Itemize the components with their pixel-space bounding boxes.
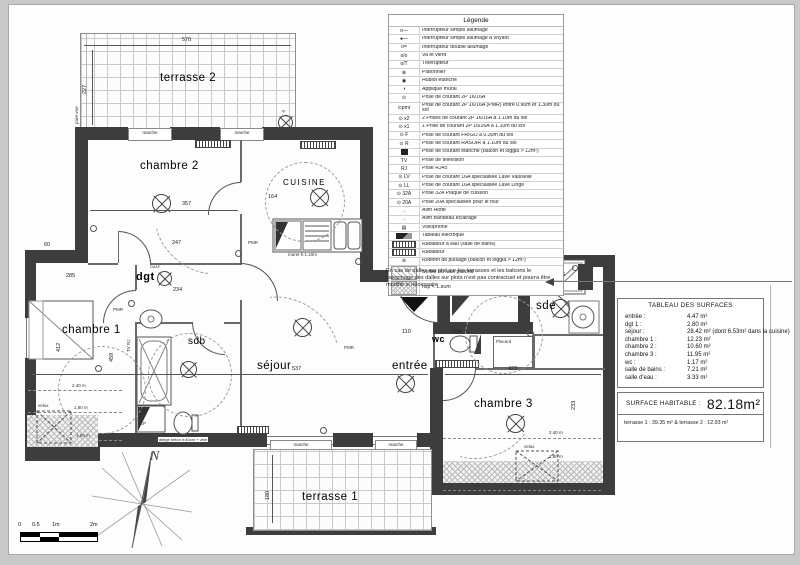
dim-108: 108: [452, 329, 461, 335]
dim-line: [445, 374, 601, 375]
legend-row: ⊙pmr Prise de courant 2P 16/16A (PMR) en…: [389, 102, 563, 114]
room-label-sde: sde: [536, 300, 556, 312]
h100-2: 1.00 m: [547, 483, 561, 488]
legend-row: ⊙ x1 1 Prise de courant 2P 16/16A à 1.10…: [389, 122, 563, 130]
pare-vue-line: [86, 34, 87, 128]
room-label-sejour: séjour: [257, 360, 291, 372]
habitable-box: SURFACE HABITABLE : 82.18m² terrasse 1 :…: [617, 392, 764, 442]
surface-row: salle d'eau : 3.33 m²: [625, 375, 763, 383]
wall: [262, 127, 373, 140]
ep-label: EP: [140, 421, 146, 426]
dim-285: 285: [66, 273, 75, 279]
room-label-cuisine: CUISINE: [283, 178, 326, 187]
surface-value: 4.47 m²: [687, 314, 763, 322]
socket-icon: [90, 225, 97, 232]
legend-row: ⊚ Robinet de puisage (balcon et loggia >…: [389, 257, 563, 265]
dim-412: 412: [56, 343, 62, 352]
legend-label: Prise RJ45: [420, 166, 563, 172]
habitable-value: 82.18m²: [707, 396, 760, 412]
legend-symbol: o/T: [389, 61, 420, 68]
dim-60: 60: [44, 242, 50, 248]
legend-symbol: ⊙: [389, 94, 420, 101]
socket-icon: [95, 365, 102, 372]
surface-row: entrée : 4.47 m²: [625, 314, 763, 322]
room-label-chambre3: chambre 3: [474, 398, 533, 410]
legend-row: ◉ Hublot étanche: [389, 76, 563, 84]
velux-label-2: velux: [524, 444, 535, 449]
surface-name: salle de bains :: [625, 367, 687, 375]
legend-label: Prise de courant FRIGO à 0.30m du sol: [420, 133, 563, 139]
legend-row: RJ Prise RJ45: [389, 164, 563, 172]
dim-line-227: [92, 50, 93, 125]
scale-05: 0.5: [32, 522, 40, 528]
dim-164: 164: [268, 194, 277, 200]
wall: [333, 433, 373, 447]
radiator: [195, 140, 231, 148]
north-label: N: [150, 449, 159, 465]
legend-row: ⊙ R Prise de courant RASOIR à 1.10m du s…: [389, 139, 563, 147]
legend-label: Interrupteur simple allumage à voyant: [420, 36, 563, 42]
room-label-placard: Placard: [496, 339, 511, 344]
legend-symbol: ⊗: [389, 69, 420, 76]
radiator: [435, 360, 479, 368]
basin-sde: [568, 300, 600, 334]
surface-value: 28.42 m² (dont 6.53m² dans la cuisine): [687, 329, 790, 337]
legend-row: Radiateur: [389, 248, 563, 256]
frame-line: [770, 285, 771, 448]
legend-label: Alim Hotte: [420, 208, 563, 214]
wall: [443, 483, 615, 495]
height-line: [28, 390, 122, 391]
duct: [578, 264, 593, 290]
daaf-detector-icon: [157, 271, 172, 286]
legend-label: Prise de courant étanche (balcon et logg…: [420, 149, 563, 155]
pmr-label-sejour: PMR: [344, 345, 354, 350]
rp-label: rp: [282, 109, 285, 113]
legend-symbol: ●—: [389, 35, 420, 42]
wall: [603, 255, 615, 495]
dim-110: 110: [402, 329, 411, 335]
legend-label: Prise 20A spécialisée pour le four: [420, 200, 563, 206]
dim-570: 570: [182, 37, 191, 43]
legend-row: Tableau électrique: [389, 231, 563, 239]
surface-value: 1.17 m²: [687, 360, 763, 368]
section-line: [554, 281, 792, 282]
legend-label: Hublot étanche: [420, 78, 563, 84]
partition: [535, 334, 603, 336]
legend-symbol: o—: [389, 27, 420, 34]
legend-label: Prise de courant 2P 16/16A: [420, 95, 563, 101]
legend-symbol: ⊙ x2: [389, 115, 420, 122]
legend-symbol: ⊙pmr: [389, 103, 420, 114]
wall: [25, 250, 88, 263]
legend-row: → Alim Hotte: [389, 206, 563, 214]
scale-bar: [20, 532, 98, 542]
plot-tiles-note: En cas de dalles sur plot sur les terras…: [386, 268, 554, 289]
partition: [240, 140, 242, 182]
surface-value: 11.95 m²: [687, 352, 763, 360]
legend-row: o/T Télérupteur: [389, 60, 563, 68]
daaf-label: DAAF: [150, 265, 160, 269]
surface-value: 7.21 m²: [687, 367, 763, 375]
dim-459: 459: [109, 353, 115, 362]
room-label-dgt: dgt: [136, 271, 155, 283]
legend-label: Plafonnier: [420, 70, 563, 76]
legend-label: Va et vient: [420, 53, 563, 59]
surface-name: chambre 3 :: [625, 352, 687, 360]
legend-symbol: ⊙ LL: [389, 182, 420, 189]
radiator: [300, 141, 336, 149]
legend-row: ▤ Visiophone: [389, 223, 563, 231]
dim-sejour-w: 537: [292, 366, 301, 372]
legend-row: ⊙ x2 2 Prises de courant 2P 16/16A à 1.1…: [389, 114, 563, 122]
legend-label: 1 Prise de courant 2P 16/16A à 1.10m du …: [420, 124, 563, 130]
surface-table: TABLEAU DES SURFACES entrée : 4.47 m² dg…: [617, 298, 764, 388]
surface-row: chambre 2 : 10.60 m²: [625, 344, 763, 352]
legend-label: Alim Bandeau éclairage: [420, 216, 563, 222]
room-label-chambre1: chambre 1: [62, 324, 121, 336]
dim-234: 234: [173, 287, 182, 293]
legend-label: Visiophone: [420, 225, 563, 231]
height-line: [443, 438, 601, 439]
surface-value: 10.60 m²: [687, 344, 763, 352]
partition: [88, 263, 118, 265]
legend-row: o/o Va et vient: [389, 51, 563, 59]
surface-name: salle d'eau :: [625, 375, 687, 383]
pmr-label-cuisine: PMR: [248, 240, 258, 245]
legend-label: Prise de courant 16A spécialisée Lave Va…: [420, 175, 563, 181]
legend-row: ●— Interrupteur simple allumage à voyant: [389, 34, 563, 42]
legend-label: Prise 32A Plaque de cuisson: [420, 191, 563, 197]
legend-row: Prise de courant étanche (balcon et logg…: [389, 148, 563, 156]
surface-table-title: TABLEAU DES SURFACES: [618, 299, 763, 311]
tv-rj-label: TV RJ: [126, 339, 131, 352]
dim-line: [32, 374, 428, 375]
legend-row: ⊙ 20A Prise 20A spécialisée pour le four: [389, 198, 563, 206]
surface-name: wc :: [625, 360, 687, 368]
legend-symbol: TV: [389, 157, 420, 164]
socket-icon: [235, 250, 242, 257]
velux-label-1: velux: [38, 403, 49, 408]
dim-247: 247: [172, 240, 181, 246]
legend-symbol: ⊙ LV: [389, 174, 420, 181]
legend-symbol: ◑: [389, 86, 420, 93]
surface-value: 2.80 m²: [687, 322, 763, 330]
surface-name: entrée :: [625, 314, 687, 322]
legend-symbol: ⊙ 20A: [389, 199, 420, 206]
surface-row: chambre 1 : 12.23 m²: [625, 337, 763, 345]
legend-row: ⊗ Plafonnier: [389, 68, 563, 76]
legend-label: Prise de courant RASOIR à 1.10m du sol: [420, 141, 563, 147]
ceiling-light-icon: [396, 374, 415, 393]
surface-row: chambre 3 : 11.95 m²: [625, 352, 763, 360]
legend: Légende o— Interrupteur simple allumage …: [388, 14, 564, 296]
dim-chambre3-w: 423: [508, 366, 517, 372]
legend-symbol: [389, 232, 420, 239]
legend-row: ⊙ LV Prise de courant 16A spécialisée La…: [389, 173, 563, 181]
legend-label: Prise de télévision: [420, 158, 563, 164]
surface-name: dgt 1 :: [625, 322, 687, 330]
allege-label: allège béton h:40cm + vitre: [158, 437, 208, 442]
terraces-note: terrasse 1 : 39.35 m² & terrasse 2 : 12.…: [618, 415, 763, 426]
surface-value: 12.23 m²: [687, 337, 763, 345]
legend-symbol: ⊙ F: [389, 132, 420, 139]
legend-label: Interrupteur simple allumage: [420, 28, 563, 34]
legend-symbol: [389, 149, 420, 156]
surface-value: 3.33 m²: [687, 375, 763, 383]
surface-row: séjour : 28.42 m² (dont 6.53m² dans la c…: [625, 329, 763, 337]
room-label-wc: wc: [432, 334, 445, 344]
legend-row: → Alim Bandeau éclairage: [389, 215, 563, 223]
room-label-terrasse1b: terrasse 1: [302, 491, 358, 503]
room-label-chambre2: chambre 2: [140, 160, 199, 172]
wall: [170, 127, 220, 140]
legend-label: Prise de courant 16A spécialisée Lave Li…: [420, 183, 563, 189]
legend-symbol: ⊙ R: [389, 140, 420, 147]
room-label-entree: entrée: [392, 360, 428, 372]
wall: [75, 127, 128, 140]
h180-1: 1.80 m: [74, 405, 88, 410]
section-arrow-icon: [545, 278, 554, 286]
legend-label: Radiateur à eau (salle de bains): [420, 242, 563, 248]
legend-symbol: RJ: [389, 165, 420, 172]
terrasse1-deck: [253, 449, 432, 531]
dim-line: [272, 455, 273, 523]
legend-symbol: o/o: [389, 52, 420, 59]
legend-label: Interrupteur double allumage: [420, 45, 563, 51]
legend-row: ◑ Applique mural: [389, 85, 563, 93]
legend-row: TV Prise de télévision: [389, 156, 563, 164]
floorplan-canvas: { "drawing": { "legend": { "title": "Lég…: [0, 0, 800, 565]
legend-row: ⊙ LL Prise de courant 16A spécialisée La…: [389, 181, 563, 189]
legend-symbol: →: [389, 216, 420, 223]
wall: [75, 140, 88, 262]
surface-name: chambre 2 :: [625, 344, 687, 352]
scale-1m: 1m: [52, 522, 60, 528]
legend-symbol: ▤: [389, 224, 420, 231]
h100-1: 1.00 m: [76, 433, 90, 438]
room-label-terrasse2: terrasse 2: [160, 72, 216, 84]
h240-2: 2.40 m: [549, 430, 563, 435]
radiator: [237, 426, 269, 434]
h180-2: 1.80 m: [549, 454, 563, 459]
compass-rose: [86, 446, 198, 550]
scale-0: 0: [18, 522, 21, 528]
room-label-sdb: sdb: [188, 336, 206, 347]
legend-symbol: o=: [389, 44, 420, 51]
step-marche-1: marche: [128, 128, 172, 141]
dim-227: 227: [82, 85, 88, 94]
legend-row: ⊙ 32A Prise 32A Plaque de cuisson: [389, 189, 563, 197]
habitable-label: SURFACE HABITABLE :: [626, 400, 701, 407]
legend-row: ⊙ Prise de courant 2P 16/16A: [389, 93, 563, 101]
dim-line: [90, 210, 238, 211]
pare-vue-label: pare-vue: [74, 106, 79, 124]
legend-symbol: [389, 249, 420, 256]
legend-symbol: [389, 241, 420, 248]
surface-row: wc : 1.17 m²: [625, 360, 763, 368]
surface-name: chambre 1 :: [625, 337, 687, 345]
legend-symbol: ⊙ 32A: [389, 190, 420, 197]
legend-label: Radiateur: [420, 250, 563, 256]
pmr-label-sdb: PMR: [113, 307, 123, 312]
dim-terrasse1-d: 180: [265, 491, 271, 500]
height-line: [443, 490, 601, 491]
muret-label: muret h:1.10m: [288, 252, 317, 257]
surface-name: séjour :: [625, 329, 687, 337]
dim-chambre2-w: 357: [182, 201, 191, 207]
legend-label: 2 Prises de courant 2P 16/16A à 1.10m du…: [420, 116, 563, 122]
legend-label: Robinet de puisage (balcon et loggia > 1…: [420, 258, 563, 264]
legend-symbol: →: [389, 207, 420, 214]
door-leaf: [118, 231, 119, 263]
legend-label: Applique mural: [420, 87, 563, 93]
dim-line-570: [84, 45, 291, 46]
legend-row: o= Interrupteur double allumage: [389, 43, 563, 51]
dim-233: 233: [571, 401, 577, 410]
velux-window: [36, 410, 72, 444]
socket-icon: [320, 427, 327, 434]
surface-row: salle de bains : 7.21 m²: [625, 367, 763, 375]
legend-row: Radiateur à eau (salle de bains): [389, 240, 563, 248]
basin-sdb: [138, 308, 164, 330]
legend-title: Légende: [389, 15, 563, 27]
legend-symbol: ◉: [389, 77, 420, 84]
legend-row: o— Interrupteur simple allumage: [389, 27, 563, 34]
legend-row: ⊙ F Prise de courant FRIGO à 0.30m du so…: [389, 131, 563, 139]
socket-icon: [355, 258, 362, 265]
legend-symbol: ⊚: [389, 258, 420, 265]
legend-label: Télérupteur: [420, 61, 563, 67]
socket-icon: [128, 300, 135, 307]
scale-2m: 2m: [90, 522, 98, 528]
surface-row: dgt 1 : 2.80 m²: [625, 322, 763, 330]
pmr-circle-cuisine: [265, 162, 345, 242]
socket-icon: [527, 330, 534, 337]
legend-label: Tableau électrique: [420, 233, 563, 239]
h240-1: 2.40 m: [72, 383, 86, 388]
legend-symbol: ⊙ x1: [389, 123, 420, 130]
legend-label: Prise de courant 2P 16/16A (PMR) entre 0…: [420, 103, 563, 114]
